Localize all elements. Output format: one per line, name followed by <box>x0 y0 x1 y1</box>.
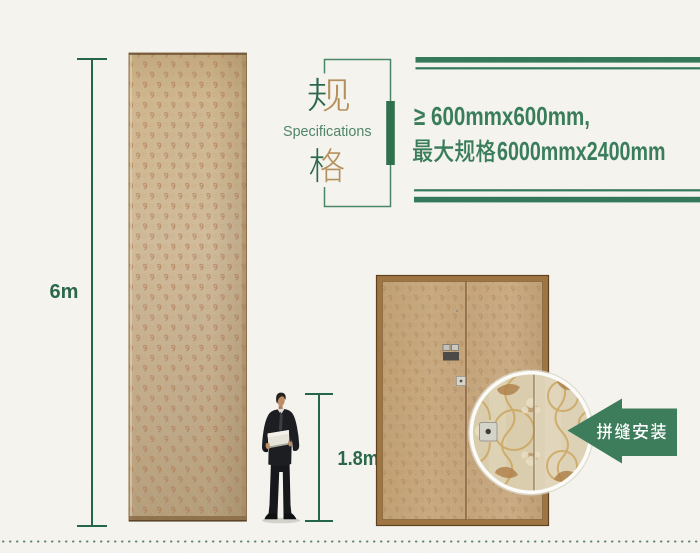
svg-text:1.8m: 1.8m <box>338 448 380 470</box>
svg-text:6m: 6m <box>50 281 79 303</box>
svg-text:Specifications: Specifications <box>283 123 372 140</box>
svg-text:≥ 600mmx600mm,: ≥ 600mmx600mm, <box>414 101 590 131</box>
svg-text:6000mmx2400mm: 6000mmx2400mm <box>497 136 666 166</box>
